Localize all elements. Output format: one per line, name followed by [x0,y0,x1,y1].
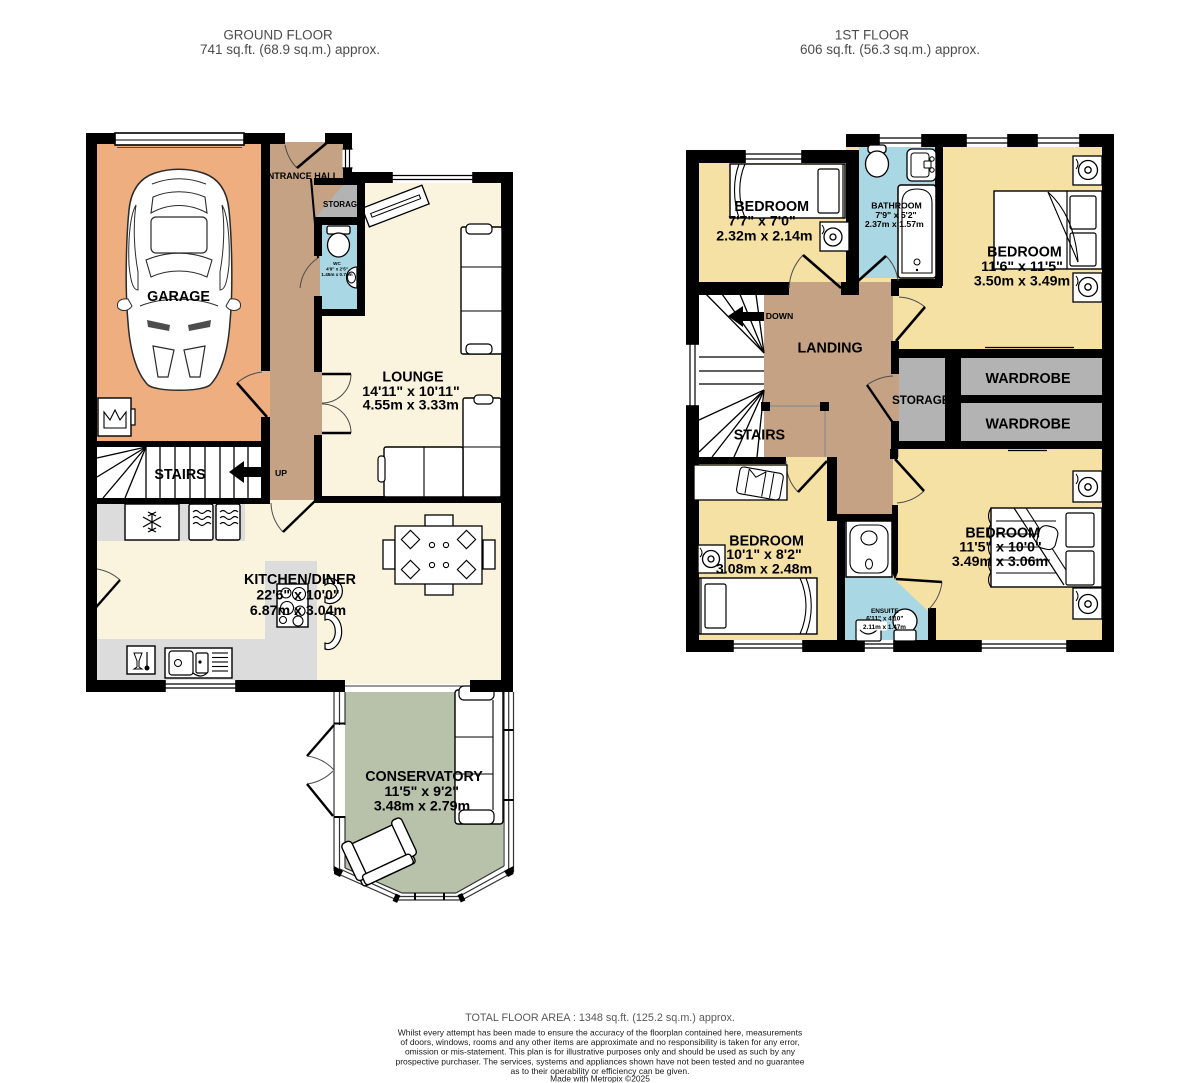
svg-text:GARAGE: GARAGE [147,289,210,305]
svg-text:Whilst every attempt has been: Whilst every attempt has been made to en… [398,1027,802,1037]
svg-text:STAIRS: STAIRS [154,467,205,483]
svg-text:DOWN: DOWN [766,311,794,321]
svg-text:4'9" x 2'5": 4'9" x 2'5" [326,267,348,272]
svg-text:STORAGE: STORAGE [892,394,950,407]
svg-text:1ST FLOOR: 1ST FLOOR [835,28,909,43]
svg-text:Made with Metropix ©2025: Made with Metropix ©2025 [550,1074,650,1083]
svg-text:4.55m x 3.33m: 4.55m x 3.33m [363,398,459,414]
svg-text:STAIRS: STAIRS [734,428,785,444]
svg-text:22'6" x 10'0": 22'6" x 10'0" [256,587,339,603]
svg-text:WARDROBE: WARDROBE [986,371,1071,387]
svg-text:WC: WC [333,261,341,266]
svg-text:KITCHEN/DINER: KITCHEN/DINER [244,572,357,588]
svg-text:3.08m x 2.48m: 3.08m x 2.48m [716,562,812,578]
svg-text:606 sq.ft. (56.3 sq.m.) approx: 606 sq.ft. (56.3 sq.m.) approx. [800,42,980,57]
svg-text:BEDROOM: BEDROOM [734,199,809,215]
svg-text:1.45m x 0.74m: 1.45m x 0.74m [321,272,352,277]
svg-text:CONSERVATORY: CONSERVATORY [365,769,483,785]
svg-text:TOTAL FLOOR AREA : 1348 sq.ft.: TOTAL FLOOR AREA : 1348 sq.ft. (125.2 sq… [465,1012,735,1024]
svg-text:7'7" x 7'0": 7'7" x 7'0" [728,214,796,230]
svg-text:2.37m x 1.57m: 2.37m x 1.57m [865,219,924,229]
svg-text:3.50m x 3.49m: 3.50m x 3.49m [974,273,1070,289]
svg-text:WARDROBE: WARDROBE [986,417,1071,433]
svg-text:6.87m x 3.04m: 6.87m x 3.04m [250,603,346,619]
svg-text:of doors, windows, rooms and a: of doors, windows, rooms and any other i… [400,1037,799,1047]
svg-text:prospective purchaser. The ser: prospective purchaser. The services, sys… [395,1056,804,1066]
svg-text:LANDING: LANDING [797,340,862,356]
svg-text:UP: UP [275,468,287,478]
svg-text:2.32m x 2.14m: 2.32m x 2.14m [716,228,812,244]
svg-text:ENTRANCE HALL: ENTRANCE HALL [262,171,339,181]
svg-text:3.48m x 2.79m: 3.48m x 2.79m [374,798,470,814]
svg-text:741 sq.ft. (68.9 sq.m.) approx: 741 sq.ft. (68.9 sq.m.) approx. [200,42,380,57]
svg-text:omission or mis-statement. Thi: omission or mis-statement. This plan is … [405,1047,796,1057]
svg-text:3.49m x 3.06m: 3.49m x 3.06m [952,554,1048,570]
svg-text:2.11m x 1.47m: 2.11m x 1.47m [863,624,906,631]
svg-text:ENSUITE: ENSUITE [871,608,899,615]
svg-text:GROUND FLOOR: GROUND FLOOR [223,28,333,43]
